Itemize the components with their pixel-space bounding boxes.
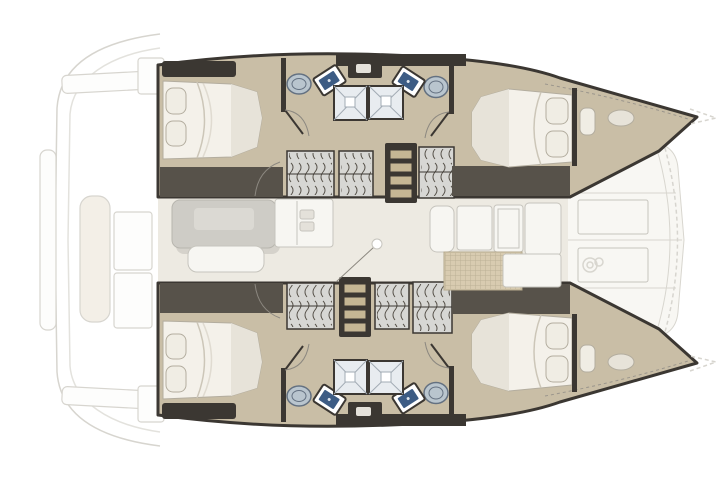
shower-icon [369,361,403,394]
aft-cockpit-outline [40,34,164,446]
pillow [166,88,186,114]
toilet-icon [424,383,448,404]
lockers-and-steps-starboard [287,277,452,337]
galley-counters [430,203,561,290]
shower-icon [334,86,367,120]
pillow [166,334,186,359]
cockpit-center-bench [80,196,110,322]
pillow [546,98,568,124]
locker [287,283,334,329]
catamaran-floor-plan [0,0,720,480]
transom-platform [40,150,56,330]
toilet-icon [287,386,311,406]
toilet-icon [287,74,311,94]
pillow [580,345,595,372]
shelf [162,403,236,419]
locker [375,283,409,329]
galley-module [275,199,333,247]
support-pole [372,239,382,249]
shower-icon [334,360,367,394]
locker [287,151,334,197]
companionway-steps [385,143,417,203]
pillow [166,366,186,392]
locker [339,151,373,197]
pillow [546,323,568,349]
shower-icon [369,86,403,119]
lockers-and-steps-port [287,143,454,203]
pillow [546,356,568,382]
pillow [546,131,568,157]
toilet-icon [424,77,448,98]
locker [419,147,454,198]
pillow [166,121,186,146]
companionway-steps [339,277,371,337]
pillow [580,108,595,135]
shelf [162,61,236,77]
floor-plan-canvas [0,0,720,480]
bench-seat [188,246,264,272]
